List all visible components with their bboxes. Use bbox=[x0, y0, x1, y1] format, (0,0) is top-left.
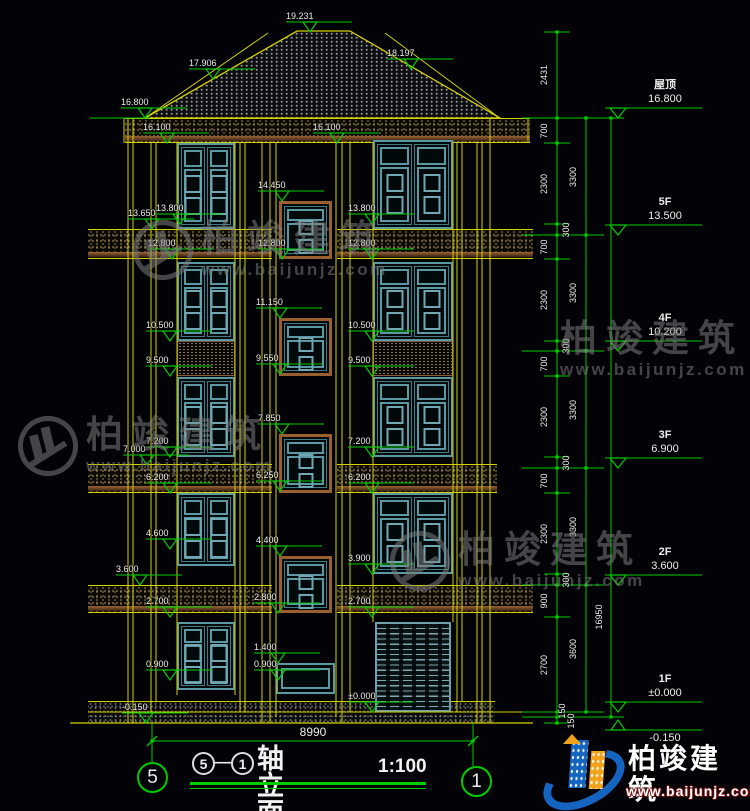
lattice-window bbox=[373, 377, 453, 457]
window-casement bbox=[207, 147, 231, 225]
window-pane bbox=[281, 668, 330, 689]
window-pane-lattice bbox=[184, 517, 202, 559]
lattice-motif bbox=[298, 575, 313, 609]
window-pane-top bbox=[380, 147, 409, 165]
window-pane-lattice bbox=[210, 645, 228, 683]
window-casement bbox=[181, 626, 205, 686]
window-pane-top bbox=[417, 147, 446, 165]
window-pane-lattice bbox=[184, 645, 202, 683]
floor-slab-band bbox=[88, 585, 272, 613]
window-pane-top bbox=[210, 500, 228, 515]
window-pane-lattice bbox=[417, 167, 446, 223]
watermark-brand-text: 柏竣建筑 bbox=[86, 416, 273, 453]
stair-window bbox=[279, 556, 332, 613]
window-casement bbox=[284, 439, 327, 488]
watermark: 柏竣建筑www.baijunjz.com bbox=[18, 416, 273, 476]
logo-tower-blue-icon bbox=[568, 740, 588, 788]
watermark-text: 柏竣建筑www.baijunjz.com bbox=[458, 531, 645, 591]
window-casement bbox=[414, 381, 449, 453]
elevation-marker-label: 6.200 bbox=[348, 472, 371, 482]
elevation-marker-label: 16.100 bbox=[313, 122, 341, 132]
window-pane-top bbox=[184, 500, 202, 515]
elevation-marker-label: 9.550 bbox=[256, 353, 279, 363]
dimension-value: 700 bbox=[539, 239, 549, 254]
roof-outline bbox=[145, 31, 500, 118]
dimension-value: 3300 bbox=[568, 400, 578, 420]
lattice-motif bbox=[298, 337, 313, 371]
elevation-marker-label: 2.700 bbox=[146, 596, 169, 606]
spandrel-panel bbox=[177, 341, 235, 376]
window-pane-lattice bbox=[184, 287, 202, 334]
watermark-url-text: www.baijunjz.com bbox=[201, 260, 388, 280]
elevation-drawing-canvas: 19.23117.90618.19716.80016.10016.10014.4… bbox=[0, 0, 750, 811]
elevation-marker-label: 4.400 bbox=[256, 535, 279, 545]
floor-elevation-label: ±0.000 bbox=[630, 688, 700, 698]
stair-window bbox=[279, 434, 332, 493]
window-pane-top bbox=[210, 629, 228, 643]
elevation-marker-label: 0.900 bbox=[146, 659, 169, 669]
logo-url-text: www.baijunjz.com bbox=[626, 783, 750, 799]
elevation-marker-label: -0.150 bbox=[122, 702, 148, 712]
watermark-text: 柏竣建筑www.baijunjz.com bbox=[560, 320, 747, 380]
lattice-motif bbox=[185, 290, 202, 330]
lattice-motif bbox=[386, 406, 403, 446]
lattice-motif bbox=[386, 174, 403, 214]
watermark-brand-text: 柏竣建筑 bbox=[201, 220, 388, 257]
window-casement bbox=[284, 323, 327, 371]
title-underline-thick bbox=[190, 782, 426, 785]
title-underline-thin bbox=[190, 788, 426, 789]
window-pane-lattice bbox=[287, 456, 324, 485]
axis-bubble-right: 1 bbox=[461, 766, 492, 797]
watermark-url-text: www.baijunjz.com bbox=[560, 360, 747, 380]
window-pane-top bbox=[417, 269, 446, 285]
watermark-text: 柏竣建筑www.baijunjz.com bbox=[86, 416, 273, 476]
dimension-value: 2300 bbox=[539, 290, 549, 310]
elevation-marker-label: 18.197 bbox=[387, 48, 415, 58]
window-casement bbox=[284, 561, 327, 608]
window-casement bbox=[377, 381, 412, 453]
elevation-marker-label: 9.500 bbox=[348, 355, 371, 365]
dimension-value: 16950 bbox=[594, 604, 604, 629]
window-pane-top bbox=[184, 629, 202, 643]
window-casement bbox=[414, 144, 449, 225]
window-pane-top bbox=[184, 150, 202, 167]
elevation-marker-label: 7.200 bbox=[348, 436, 371, 446]
lattice-window bbox=[177, 622, 235, 690]
watermark: 柏竣建筑www.baijunjz.com bbox=[390, 531, 645, 591]
lattice-motif bbox=[211, 518, 228, 558]
brand-logo: 柏竣建筑 www.baijunjz.com bbox=[540, 739, 750, 811]
elevation-marker-label: 3.900 bbox=[348, 553, 371, 563]
window-pane-top bbox=[210, 150, 228, 167]
elevation-marker-label: 16.100 bbox=[143, 122, 171, 132]
drawing-title-text: 轴立面图 bbox=[257, 746, 287, 811]
lattice-motif bbox=[386, 290, 403, 330]
dimension-value: 2300 bbox=[539, 174, 549, 194]
lattice-motif bbox=[185, 644, 202, 684]
window-pane-lattice bbox=[287, 340, 324, 368]
window-pane-lattice bbox=[287, 578, 324, 605]
window-pane-top bbox=[417, 500, 446, 516]
floor-elevation-label: 13.500 bbox=[630, 211, 700, 221]
elevation-marker-label: 14.450 bbox=[258, 180, 286, 190]
lattice-motif bbox=[211, 644, 228, 684]
window-pane-lattice bbox=[417, 402, 446, 450]
window-pane-lattice bbox=[210, 287, 228, 334]
elevation-marker-label: 10.500 bbox=[146, 320, 174, 330]
lattice-motif bbox=[211, 175, 228, 215]
window-pane-lattice bbox=[380, 287, 409, 334]
elevation-marker-label: ±0.000 bbox=[348, 691, 375, 701]
dimension-value: 2700 bbox=[539, 655, 549, 675]
dimension-value: 3600 bbox=[568, 639, 578, 659]
watermark-text: 柏竣建筑www.baijunjz.com bbox=[201, 220, 388, 280]
window-pane-top bbox=[380, 500, 409, 516]
watermark-url-text: www.baijunjz.com bbox=[86, 456, 273, 476]
watermark-logo-icon bbox=[12, 410, 85, 483]
drawing-scale-text: 1:100 bbox=[378, 757, 427, 776]
lattice-motif bbox=[423, 406, 440, 446]
elevation-marker-label: 10.500 bbox=[348, 320, 376, 330]
watermark-brand-text: 柏竣建筑 bbox=[458, 531, 645, 568]
window-casement bbox=[414, 266, 449, 337]
window-pane-lattice bbox=[417, 287, 446, 334]
lattice-window bbox=[177, 143, 235, 229]
bottom-dimension-label: 8990 bbox=[285, 727, 341, 737]
garage-rolling-door bbox=[375, 622, 451, 712]
watermark-logo-icon bbox=[384, 525, 457, 598]
window-pane-lattice bbox=[184, 169, 202, 222]
window-pane-top bbox=[184, 384, 202, 400]
lattice-motif bbox=[211, 290, 228, 330]
window-pane-top bbox=[380, 384, 409, 400]
elevation-marker-label: 17.906 bbox=[189, 58, 217, 68]
window-pane-lattice bbox=[210, 517, 228, 559]
elevation-marker-label: 1.400 bbox=[254, 642, 277, 652]
dimension-value: 300 bbox=[561, 222, 571, 237]
dimension-value: 300 bbox=[561, 455, 571, 470]
dimension-value: 3300 bbox=[568, 283, 578, 303]
lattice-motif bbox=[423, 174, 440, 214]
window-casement bbox=[181, 497, 205, 562]
elevation-marker-label: 11.150 bbox=[256, 297, 283, 307]
dimension-value: 2300 bbox=[539, 407, 549, 427]
lattice-window bbox=[177, 493, 235, 566]
elevation-marker-label: 9.500 bbox=[146, 355, 169, 365]
watermark-logo-icon bbox=[127, 214, 200, 287]
lattice-motif bbox=[298, 454, 313, 488]
lattice-motif bbox=[185, 175, 202, 215]
dimension-value: 700 bbox=[539, 356, 549, 371]
dimension-value: 700 bbox=[539, 473, 549, 488]
logo-roof-icon bbox=[563, 734, 581, 744]
floor-elevation-label: 6.900 bbox=[630, 444, 700, 454]
elevation-marker-label: 13.650 bbox=[128, 208, 156, 218]
elevation-marker-label: 4.600 bbox=[146, 528, 169, 538]
window-casement bbox=[207, 497, 231, 562]
axis-bubble-left: 5 bbox=[137, 762, 168, 793]
lattice-motif bbox=[185, 518, 202, 558]
floor-name-label: 5F bbox=[630, 197, 700, 207]
elevation-marker-label: 0.900 bbox=[254, 659, 277, 669]
title-axis-from: 5 bbox=[192, 752, 215, 775]
elevation-marker-label: 3.600 bbox=[116, 564, 139, 574]
title-axis-separator: — bbox=[215, 754, 231, 772]
watermark: 柏竣建筑www.baijunjz.com bbox=[560, 320, 747, 380]
floor-name-label: 1F bbox=[630, 674, 700, 684]
logo-tower-orange-icon bbox=[589, 751, 606, 789]
window-pane-lattice bbox=[380, 402, 409, 450]
watermark-url-text: www.baijunjz.com bbox=[458, 571, 645, 591]
floor-elevation-label: 16.800 bbox=[630, 94, 700, 104]
elevation-marker-label: 19.231 bbox=[286, 11, 314, 21]
lattice-motif bbox=[423, 290, 440, 330]
floor-name-label: 3F bbox=[630, 430, 700, 440]
dimension-value: 700 bbox=[539, 123, 549, 138]
window-pane-top bbox=[210, 384, 228, 400]
watermark: 柏竣建筑www.baijunjz.com bbox=[133, 220, 388, 280]
lattice-window bbox=[373, 140, 453, 229]
window-pane-lattice bbox=[210, 169, 228, 222]
window-pane-top bbox=[287, 442, 324, 454]
dimension-value: 150 bbox=[566, 713, 576, 728]
lattice-window bbox=[276, 663, 335, 694]
elevation-marker-label: 13.800 bbox=[348, 203, 376, 213]
dimension-value: 2431 bbox=[539, 65, 549, 85]
watermark-brand-text: 柏竣建筑 bbox=[560, 320, 747, 357]
window-pane-lattice bbox=[380, 167, 409, 223]
window-casement bbox=[207, 626, 231, 686]
elevation-marker-label: 13.800 bbox=[156, 203, 184, 213]
elevation-marker-label: 2.800 bbox=[254, 592, 277, 602]
floor-name-label: 屋顶 bbox=[630, 80, 700, 90]
dimension-value: 3300 bbox=[568, 167, 578, 187]
window-casement bbox=[181, 147, 205, 225]
window-pane-top bbox=[417, 384, 446, 400]
stair-window bbox=[279, 318, 332, 376]
title-axis-to: 1 bbox=[231, 752, 254, 775]
elevation-marker-label: 16.800 bbox=[121, 97, 149, 107]
elevation-marker-label: 2.700 bbox=[348, 596, 371, 606]
dimension-value: 900 bbox=[539, 593, 549, 608]
spandrel-panel bbox=[373, 341, 453, 376]
window-casement bbox=[377, 144, 412, 225]
